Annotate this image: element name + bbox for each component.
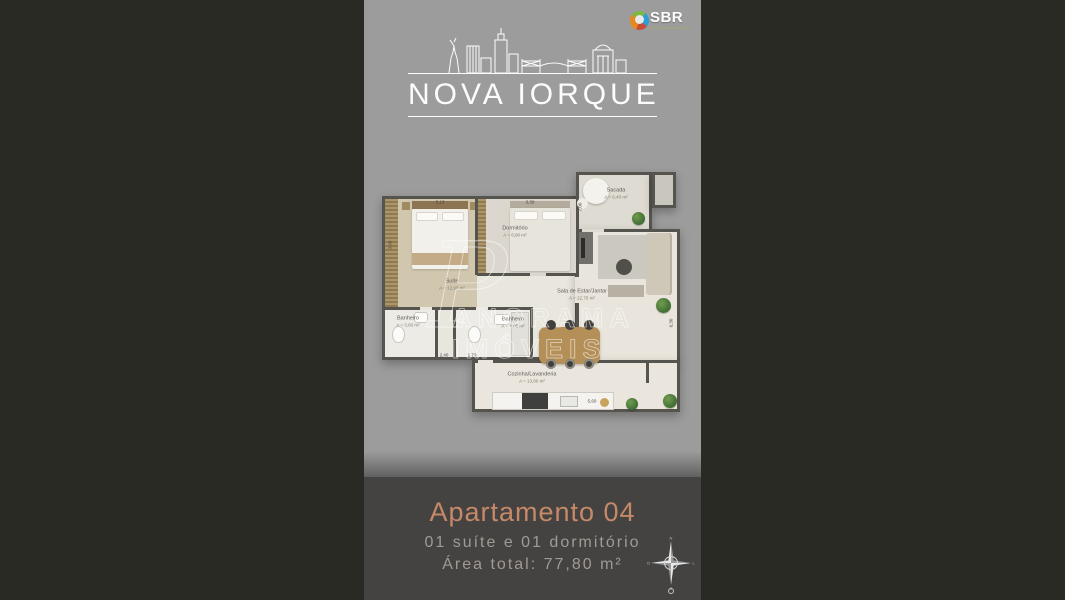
logo-divider-bottom (408, 116, 657, 117)
pouf (616, 259, 632, 275)
dining-chair-4 (546, 359, 556, 369)
sbr-name: SBR (650, 9, 691, 26)
compass-s: S (670, 586, 673, 591)
stove (522, 393, 548, 409)
bath1-door-gap (420, 307, 432, 310)
room-label-kitchen: Cozinha/Lavanderia A = 13,80 m² (508, 371, 557, 384)
poster-background: SBR empreendimentos (0, 0, 1065, 600)
kitchen-plant-icon (626, 398, 638, 410)
compass-rose-icon: N L S O (647, 533, 695, 597)
dim-kitchen: 5,60 (588, 399, 597, 404)
dining-chair-6 (584, 359, 594, 369)
apartment-title: Apartamento 04 (364, 497, 701, 528)
entry-door-gap (478, 360, 493, 363)
bedroom-bed-headboard (510, 201, 570, 208)
compass-n: N (670, 536, 673, 541)
fruit-basket (600, 398, 609, 407)
bedroom-door-gap (530, 273, 546, 276)
kitchen-sink (560, 396, 578, 407)
skyline-icon (427, 28, 639, 74)
wall-kitchen-right-stub (646, 363, 649, 383)
project-title: NOVA IORQUE (408, 74, 657, 116)
poster-gray-area: SBR empreendimentos (364, 0, 701, 477)
service-plant-icon (663, 394, 677, 408)
sbr-text: SBR empreendimentos (650, 9, 691, 30)
wall-bath1-right (435, 310, 438, 357)
room-label-bath2: Banheiro A = 4,05 m² (501, 316, 524, 329)
dim-balcony-side: 7,00 (578, 203, 583, 212)
room-label-bedroom: Dormitório A = 8,90 m² (502, 225, 527, 238)
tv-screen (581, 238, 585, 258)
dim-suite-top: 5,13 (436, 200, 445, 205)
sbr-logo: SBR empreendimentos (630, 9, 691, 30)
sofa (646, 233, 672, 295)
room-label-bath1: Banheiro A = 3,60 m² (396, 315, 419, 328)
bath2-door-gap (476, 307, 488, 310)
room-label-living: Sala de Estar/Jantar A = 22,75 m² (557, 288, 607, 301)
credenza (608, 285, 644, 297)
wall-suite-bedroom (475, 199, 478, 275)
dim-living-right: 6,30 (669, 319, 674, 328)
dim-bedroom-top: 3,30 (526, 200, 535, 205)
suite-pillow-right (442, 212, 464, 221)
apartment-poster: SBR empreendimentos (364, 0, 701, 600)
suite-bed-throw (412, 253, 468, 265)
room-label-suite: Suíte A = 12,90 m² (439, 278, 465, 291)
wall-bath2-left (453, 310, 456, 357)
dim-bath1: 2,40 (440, 353, 449, 358)
wall-bath2-right (530, 310, 533, 357)
bedroom-pillow-left (514, 211, 538, 220)
room-label-balcony: Sacada A = 6,40 m² (604, 187, 627, 200)
balcony-plant-icon (632, 212, 645, 225)
living-balcony-gap (582, 229, 604, 232)
suite-wardrobe (385, 199, 398, 309)
balcony-rail (652, 172, 676, 208)
dining-chair-1 (546, 320, 556, 330)
compass-w: O (647, 561, 650, 566)
floor-plan: Suíte A = 12,90 m² Dormitório A = 8,90 m… (380, 165, 695, 420)
dining-chair-3 (584, 320, 594, 330)
suite-nightstand-left (402, 202, 410, 210)
living-plant-icon (656, 298, 671, 313)
dining-chair-2 (565, 320, 575, 330)
compass-e: L (693, 561, 696, 566)
bath2-toilet (468, 326, 481, 343)
dim-suite-left: 3,90 (388, 241, 393, 250)
dim-bath2: 1,70 (468, 353, 477, 358)
wall-bath-top (382, 307, 533, 310)
wall-bedroom-hall (477, 273, 576, 276)
bedroom-wardrobe (477, 199, 486, 275)
footer-band: Apartamento 04 01 suíte e 01 dormitório … (364, 477, 701, 600)
bedroom-pillow-right (542, 211, 566, 220)
dining-chair-5 (565, 359, 575, 369)
project-logo: NOVA IORQUE (408, 28, 657, 117)
suite-pillow-left (416, 212, 438, 221)
